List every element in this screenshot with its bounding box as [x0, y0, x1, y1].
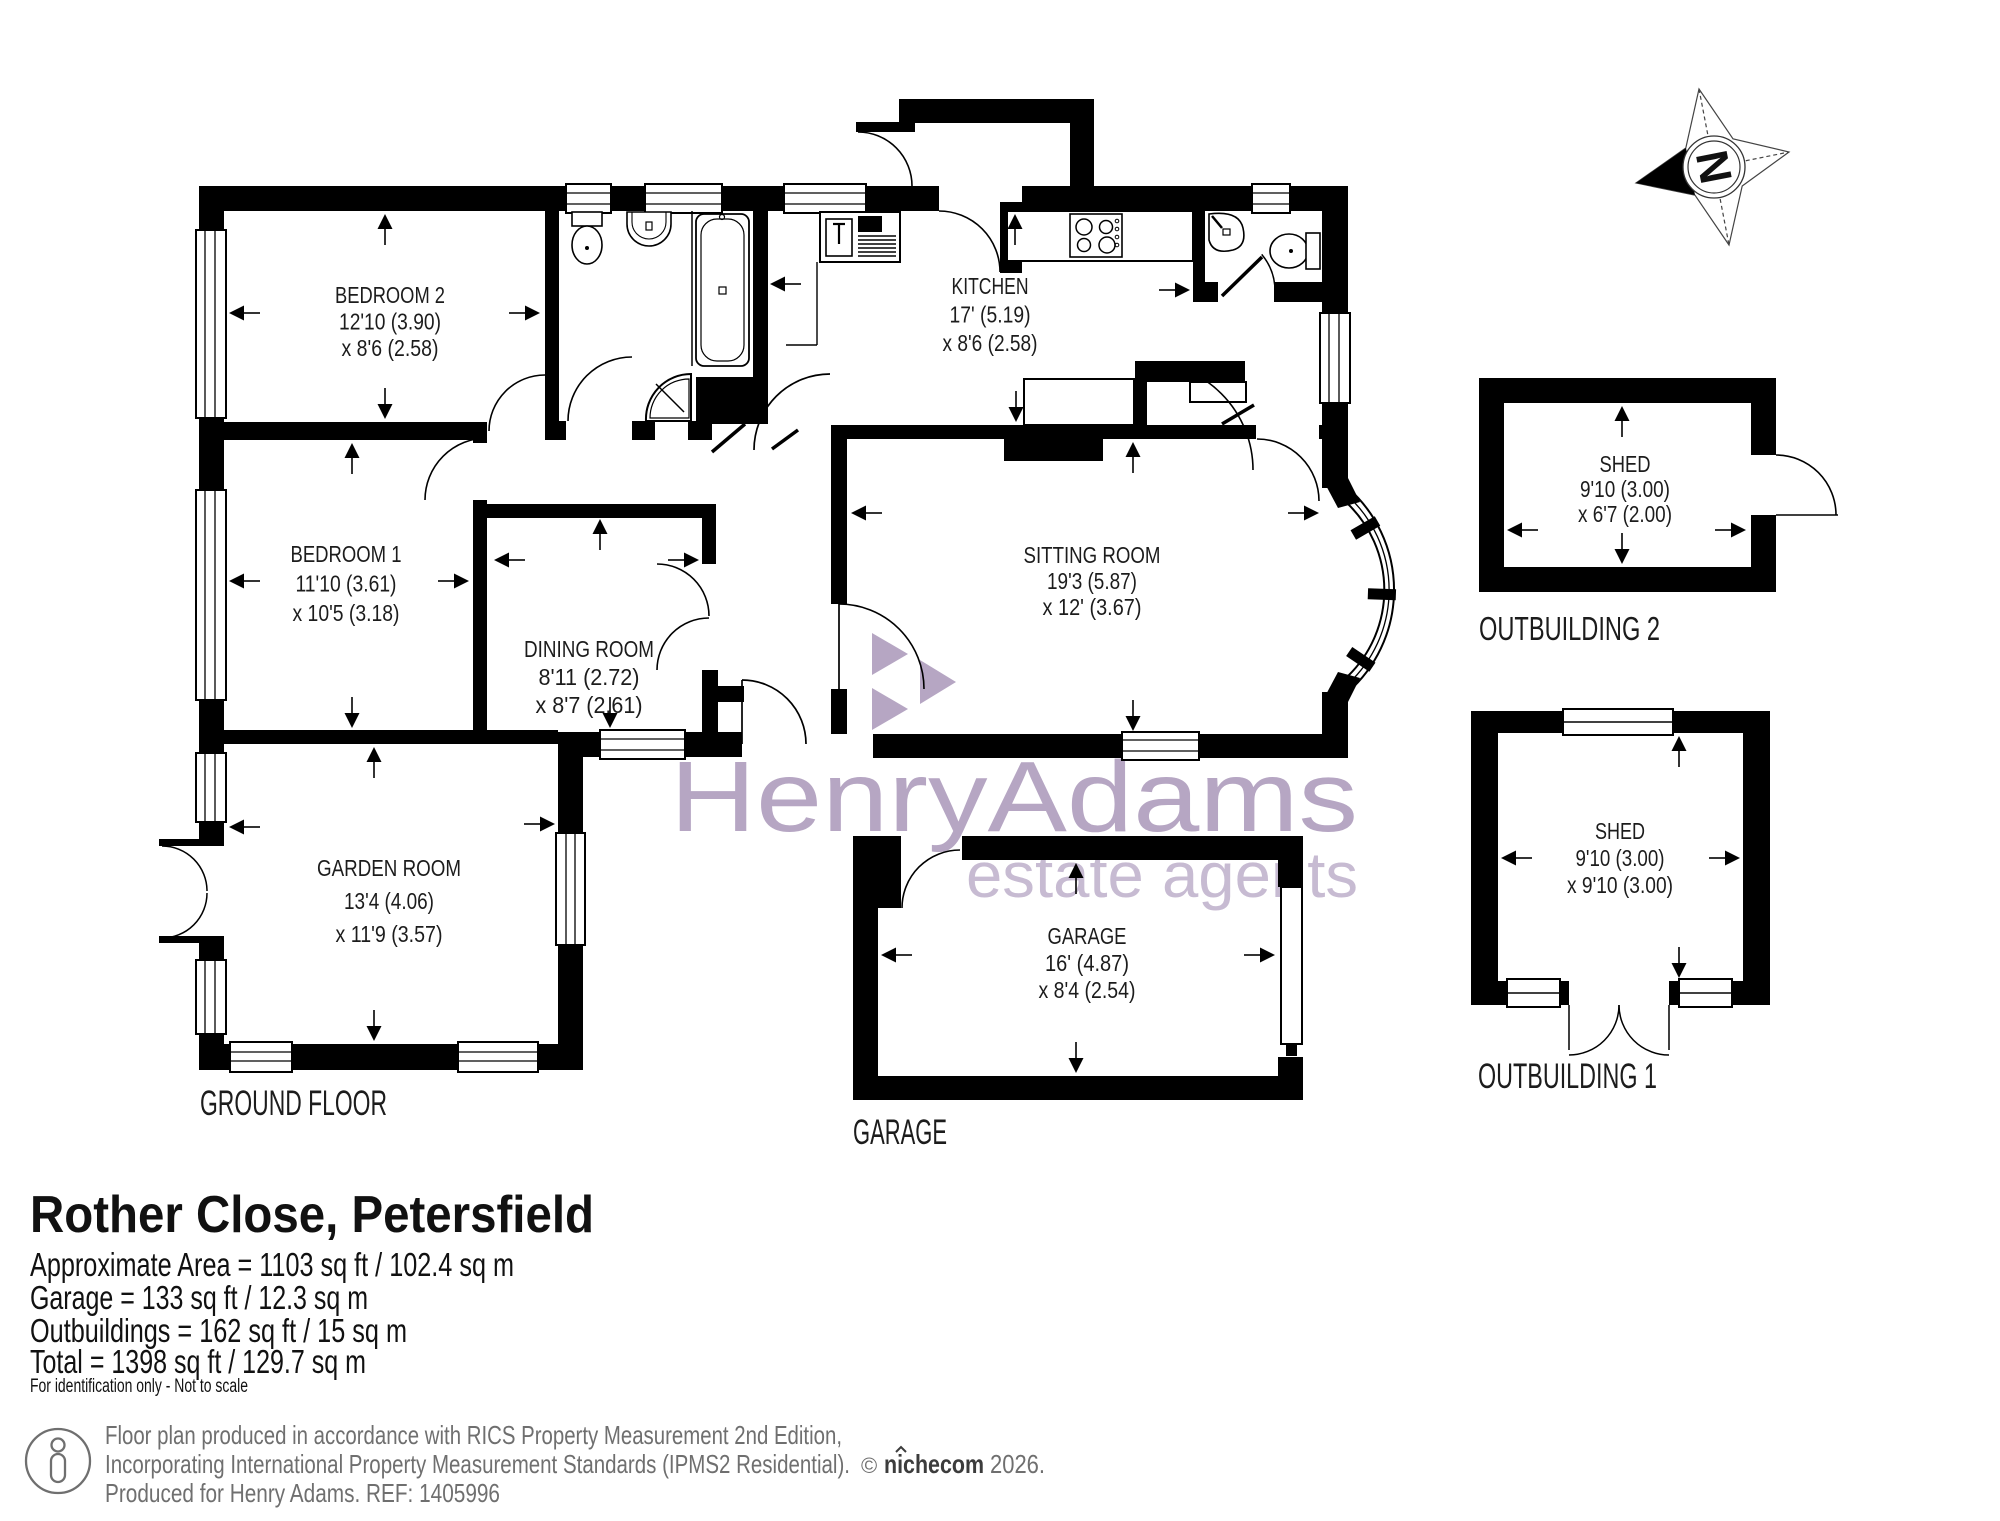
svg-text:SHED: SHED: [1595, 818, 1645, 844]
svg-text:SITTING ROOM: SITTING ROOM: [1024, 542, 1161, 568]
svg-text:nichecom: nichecom: [884, 1449, 984, 1479]
svg-text:Approximate Area = 1103 sq ft: Approximate Area = 1103 sq ft / 102.4 sq…: [30, 1246, 514, 1283]
svg-text:x 8'4 (2.54): x 8'4 (2.54): [1039, 977, 1136, 1003]
svg-text:OUTBUILDING 1: OUTBUILDING 1: [1478, 1057, 1657, 1096]
svg-text:Produced for Henry Adams. RE: Produced for Henry Adams. REF: 1405996: [105, 1478, 500, 1508]
svg-text:OUTBUILDING 2: OUTBUILDING 2: [1479, 610, 1660, 647]
svg-text:Garage = 133 sq ft / 12.3 sq m: Garage = 133 sq ft / 12.3 sq m: [30, 1279, 368, 1316]
svg-text:11'10 (3.61): 11'10 (3.61): [296, 571, 397, 597]
svg-text:BEDROOM 1: BEDROOM 1: [291, 541, 402, 567]
svg-text:13'4 (4.06): 13'4 (4.06): [344, 888, 434, 914]
svg-text:GARAGE: GARAGE: [1048, 923, 1127, 949]
svg-text:x 11'9 (3.57): x 11'9 (3.57): [336, 921, 443, 947]
svg-text:x 9'10 (3.00): x 9'10 (3.00): [1567, 872, 1673, 898]
svg-text:x 10'5 (3.18): x 10'5 (3.18): [293, 600, 400, 626]
svg-text:Total = 1398 sq ft / 129.7 sq: Total = 1398 sq ft / 129.7 sq m: [30, 1343, 366, 1380]
svg-text:16' (4.87): 16' (4.87): [1045, 950, 1129, 976]
svg-text:x 8'6 (2.58): x 8'6 (2.58): [342, 335, 439, 361]
svg-text:x 6'7 (2.00): x 6'7 (2.00): [1578, 501, 1672, 527]
svg-text:SHED: SHED: [1600, 451, 1651, 477]
svg-text:Floor plan produced in accorda: Floor plan produced in accordance with R…: [105, 1420, 842, 1450]
svg-text:GROUND FLOOR: GROUND FLOOR: [200, 1084, 387, 1123]
svg-text:19'3 (5.87): 19'3 (5.87): [1047, 568, 1137, 594]
svg-text:Rother Close, Petersfield: Rother Close, Petersfield: [30, 1186, 594, 1244]
svg-text:12'10 (3.90): 12'10 (3.90): [339, 309, 441, 335]
svg-text:©: ©: [861, 1453, 877, 1478]
svg-text:x 12' (3.67): x 12' (3.67): [1043, 594, 1142, 620]
svg-text:17' (5.19): 17' (5.19): [950, 302, 1031, 328]
svg-text:GARDEN ROOM: GARDEN ROOM: [317, 855, 461, 881]
svg-text:9'10 (3.00): 9'10 (3.00): [1580, 476, 1670, 502]
svg-text:BEDROOM 2: BEDROOM 2: [335, 282, 445, 308]
svg-text:x 8'7 (2.61): x 8'7 (2.61): [536, 692, 643, 718]
svg-text:Incorporating International Pr: Incorporating International Property Mea…: [105, 1449, 850, 1479]
svg-text:2026.: 2026.: [990, 1449, 1045, 1479]
svg-text:x 8'6 (2.58): x 8'6 (2.58): [943, 330, 1038, 356]
svg-text:8'11 (2.72): 8'11 (2.72): [539, 664, 640, 690]
svg-text:For identification only - Not: For identification only - Not to scale: [30, 1376, 248, 1397]
svg-text:GARAGE: GARAGE: [853, 1113, 947, 1152]
svg-text:9'10 (3.00): 9'10 (3.00): [1576, 845, 1665, 871]
svg-text:DINING ROOM: DINING ROOM: [524, 636, 654, 662]
svg-text:KITCHEN: KITCHEN: [952, 273, 1029, 299]
